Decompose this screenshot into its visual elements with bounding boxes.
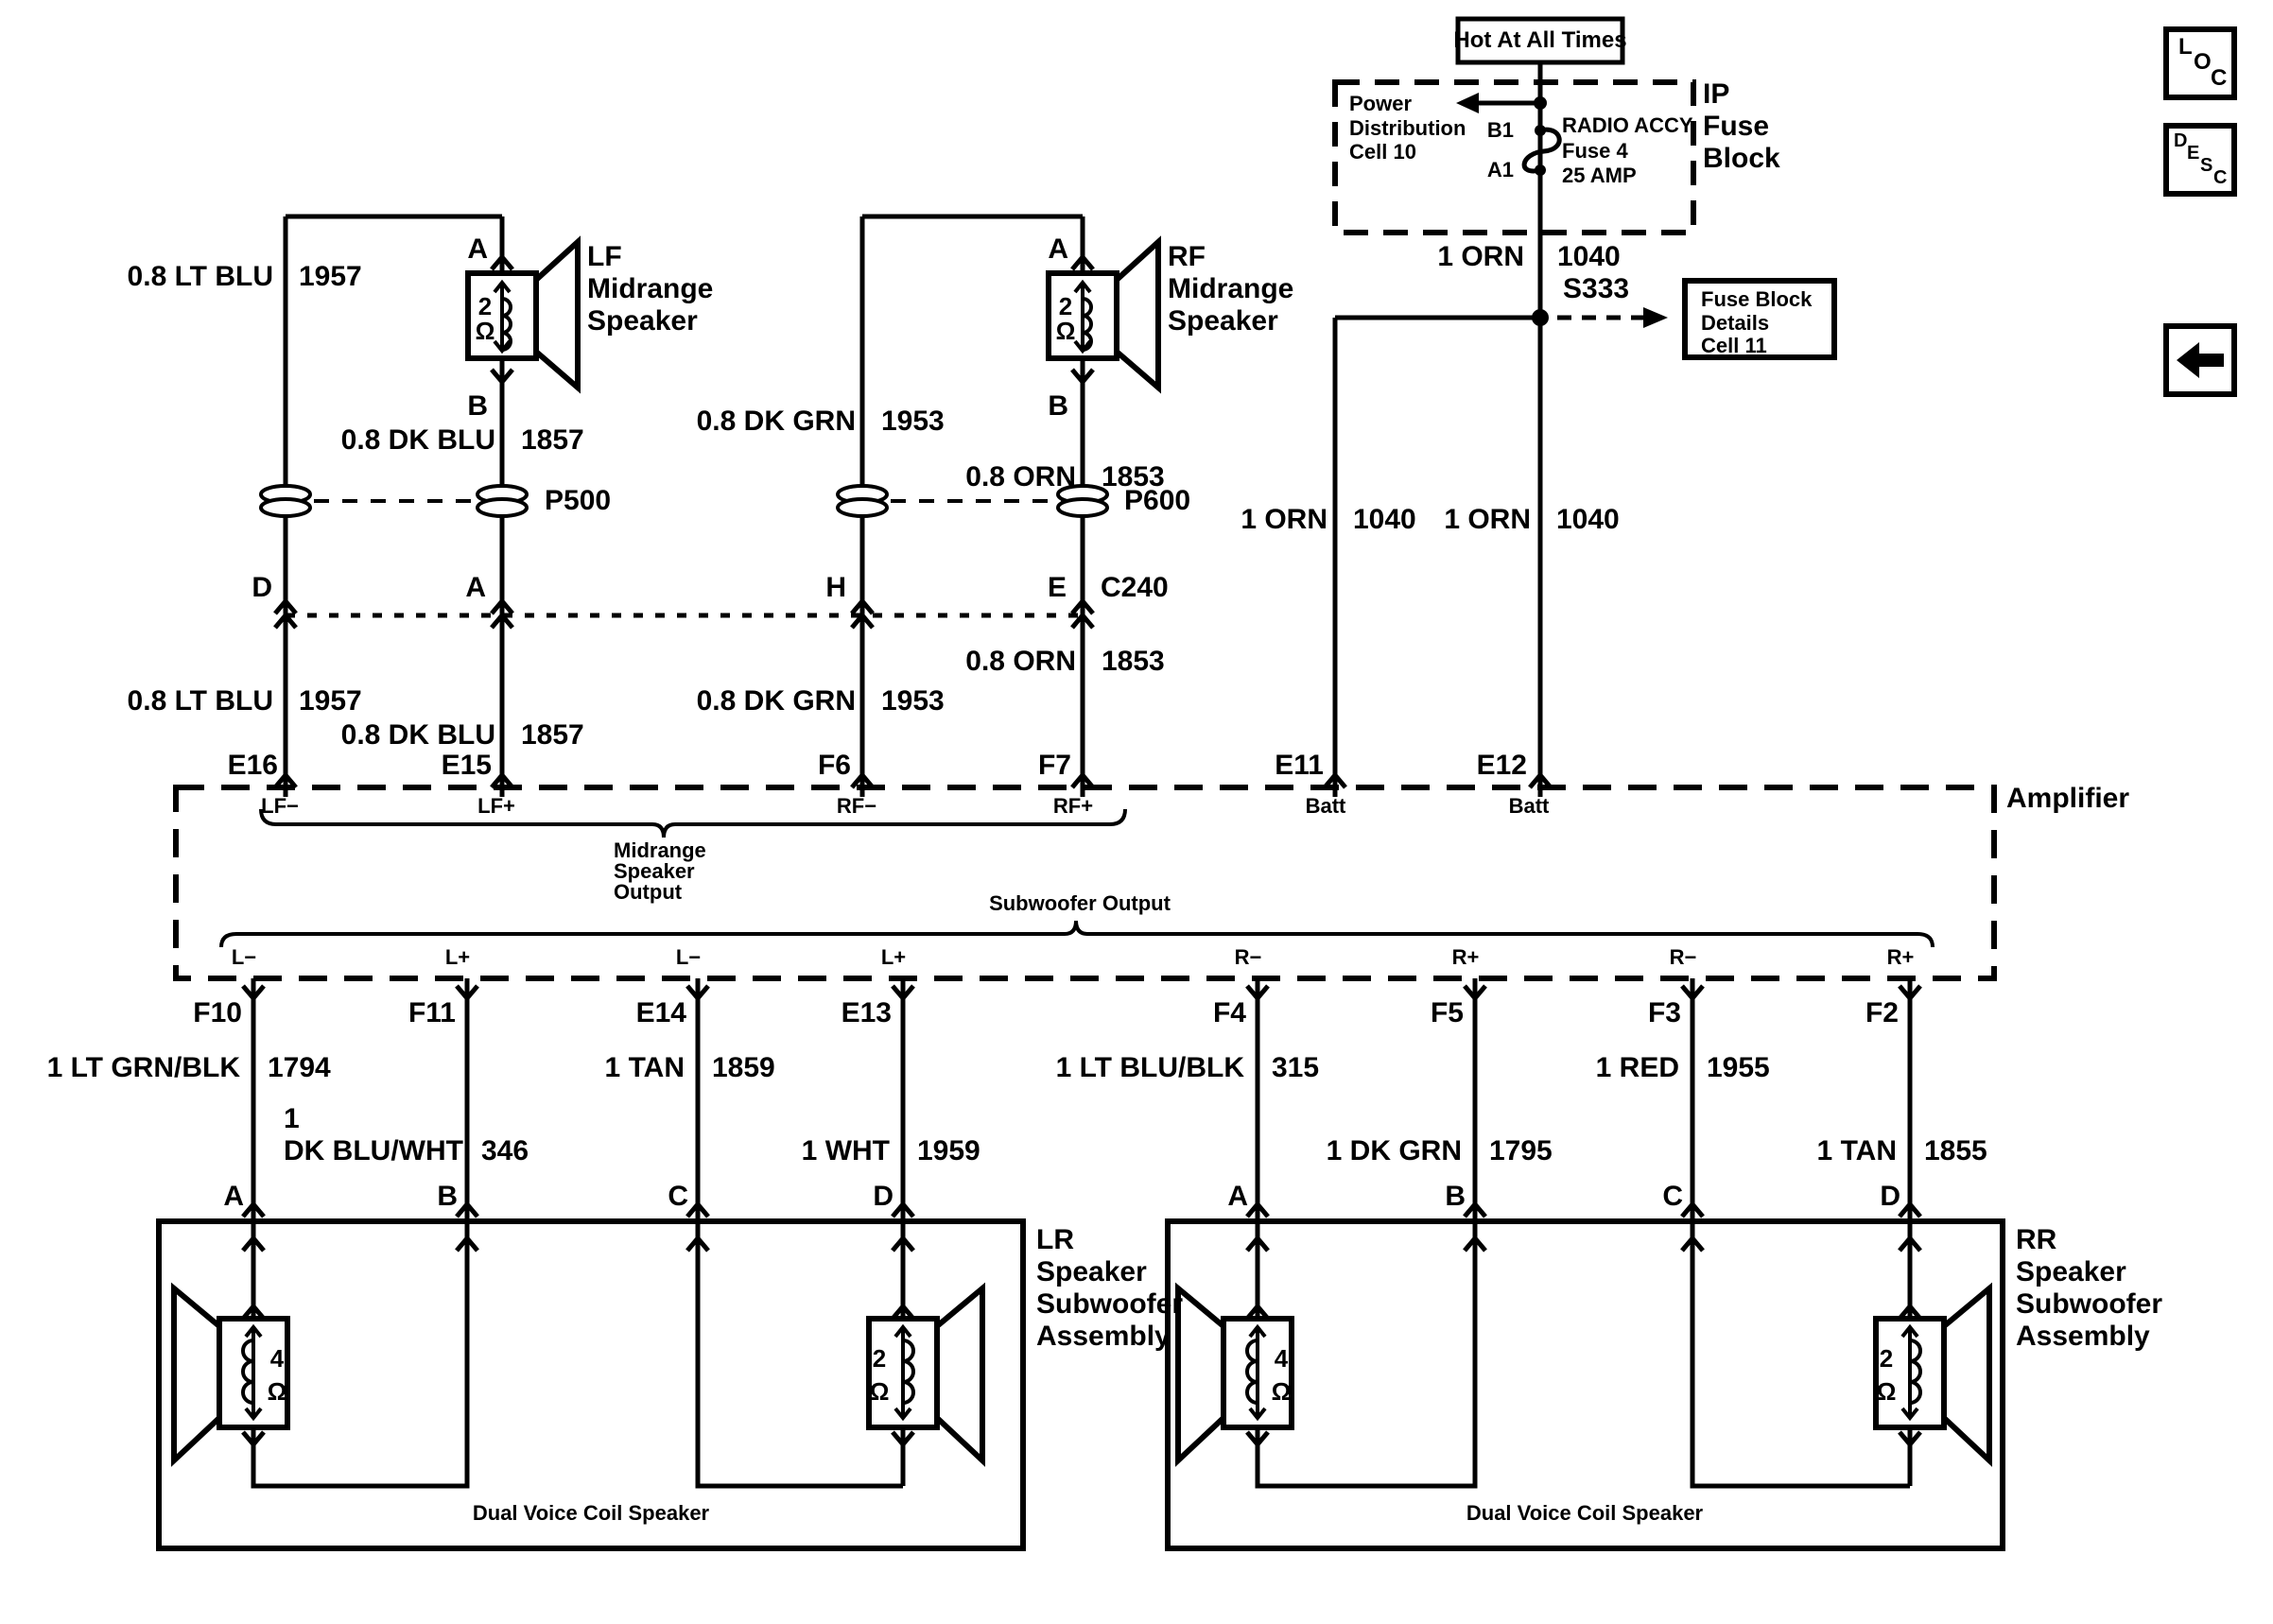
amp-pin-f11: F11 (408, 999, 456, 1028)
wire-lf-neg-name: 0.8 LT BLU (128, 263, 273, 291)
amp-pin-f4: F4 (1213, 999, 1246, 1028)
wire-batt-e11-circuit: 1040 (1353, 506, 1416, 534)
midrange-output-line: Speaker (614, 861, 695, 882)
amp-fn-batt-1: Batt (1306, 796, 1346, 817)
rf-speaker-name-line: Speaker (1168, 307, 1278, 336)
lf-pin-b-label: B (467, 392, 488, 421)
rr-dual-voice-coil-caption: Dual Voice Coil Speaker (1466, 1503, 1703, 1524)
wire-rf-neg-circuit: 1953 (881, 407, 945, 436)
amp-fn-l-neg-2: L− (676, 947, 701, 968)
loc-letter: O (2194, 51, 2212, 74)
amp-pin-e14: E14 (636, 999, 686, 1028)
rf-pin-b-label: B (1048, 392, 1068, 421)
amp-fn-batt-2: Batt (1509, 796, 1550, 817)
wire-lf-pos-name-lower: 0.8 DK BLU (341, 721, 495, 750)
wire-f5-circuit: 1795 (1489, 1137, 1553, 1166)
midrange-output-line: Midrange (614, 840, 706, 861)
amp-pin-e15: E15 (442, 752, 492, 780)
lr-pin-b: B (437, 1183, 458, 1211)
desc-letter: C (2213, 168, 2227, 187)
amp-fn-lf-pos: LF+ (477, 796, 515, 817)
wire-f4-name: 1 LT BLU/BLK (1056, 1054, 1244, 1082)
rf-impedance-value: 2 (1059, 294, 1072, 319)
power-distribution-arrow-icon (1456, 93, 1479, 113)
wire-e14-name: 1 TAN (605, 1054, 685, 1082)
wire-f11-prefix: 1 (284, 1105, 300, 1133)
rr-coil-right-unit: Ω (1877, 1379, 1897, 1404)
wire-rf-pos-circuit-lower: 1853 (1102, 648, 1165, 676)
wire-batt-e12-circuit: 1040 (1556, 506, 1620, 534)
fuse-info-line: 25 AMP (1562, 165, 1637, 186)
lr-pin-d: D (873, 1183, 894, 1211)
amp-fn-l-pos-1: L+ (445, 947, 470, 968)
fuse-info-line: RADIO ACCY (1562, 115, 1693, 136)
lr-pin-c: C (668, 1183, 688, 1211)
wire-f10-circuit: 1794 (268, 1054, 331, 1082)
wire-f11-circuit: 346 (481, 1137, 529, 1166)
rf-speaker-name-line: RF (1168, 243, 1206, 271)
amp-fn-l-pos-2: L+ (881, 947, 906, 968)
amp-fn-r-neg-2: R− (1670, 947, 1697, 968)
ip-fuse-block-title-line: Fuse (1703, 112, 1769, 141)
lf-pin-a-label: A (467, 235, 488, 264)
c240-pin-h: H (825, 574, 846, 602)
lr-coil-left-value: 4 (270, 1346, 284, 1371)
ip-fuse-block-title-line: IP (1703, 80, 1729, 109)
amp-pin-f6: F6 (818, 752, 851, 780)
lf-impedance-unit: Ω (476, 319, 495, 343)
power-distribution-line: Distribution (1349, 118, 1466, 139)
lf-speaker-name-line: LF (587, 243, 622, 271)
fuse-block-details-line: Cell 11 (1701, 336, 1767, 356)
wire-batt-e11-name: 1 ORN (1241, 506, 1327, 534)
amp-fn-r-pos-2: R+ (1887, 947, 1915, 968)
fuse-output-wire-circuit: 1040 (1557, 243, 1621, 271)
wire-lf-pos-name: 0.8 DK BLU (341, 426, 495, 455)
amp-fn-l-neg-1: L− (232, 947, 256, 968)
desc-letter: S (2200, 156, 2212, 175)
wiring-diagram-page: Hot At All Times Power Distribution Cell… (0, 0, 2273, 1624)
rf-speaker-name-line: Midrange (1168, 275, 1293, 303)
amp-pin-e13: E13 (842, 999, 892, 1028)
wire-lf-neg-circuit: 1957 (299, 263, 362, 291)
rr-voice-coil-left-icon (1178, 1288, 1292, 1460)
terminal-b1-label: B1 (1487, 120, 1514, 141)
fuse-output-wire-name: 1 ORN (1437, 243, 1524, 271)
lr-assembly-name-line: LR (1036, 1226, 1074, 1254)
wire-e13-name: 1 WHT (802, 1137, 890, 1166)
wire-f3-name: 1 RED (1596, 1054, 1679, 1082)
amp-fn-rf-neg: RF− (837, 796, 876, 817)
fuse-details-arrow-icon (1643, 307, 1668, 328)
subwoofer-output-label: Subwoofer Output (989, 893, 1171, 914)
c240-pin-d: D (252, 574, 272, 602)
wiring-diagram-art (0, 0, 2273, 1624)
connector-p500-label: P500 (545, 487, 611, 515)
amp-pin-f3: F3 (1648, 999, 1681, 1028)
connector-p600-label: P600 (1124, 487, 1190, 515)
lr-coil-left-unit: Ω (268, 1379, 287, 1404)
lr-assembly-name-line: Assembly (1036, 1322, 1171, 1351)
wire-rf-neg-circuit-lower: 1953 (881, 687, 945, 716)
c240-pin-a: A (465, 574, 486, 602)
lf-speaker-name-line: Speaker (587, 307, 698, 336)
lr-voice-coil-right-icon (869, 1288, 982, 1460)
wire-batt-e12-name: 1 ORN (1444, 506, 1531, 534)
fuse-info-line: Fuse 4 (1562, 141, 1628, 162)
splice-s333-label: S333 (1563, 275, 1629, 303)
wire-lf-pos-circuit: 1857 (521, 426, 584, 455)
c240-pin-e: E (1048, 574, 1067, 602)
lr-coil-right-value: 2 (873, 1346, 886, 1371)
amp-pin-f2: F2 (1865, 999, 1899, 1028)
rr-voice-coil-right-icon (1876, 1288, 1989, 1460)
lr-coil-right-unit: Ω (870, 1379, 890, 1404)
lf-speaker-name-line: Midrange (587, 275, 713, 303)
amplifier-label: Amplifier (2006, 785, 2129, 813)
rr-assembly-name-line: RR (2016, 1226, 2056, 1254)
back-button[interactable] (2163, 323, 2237, 397)
wire-f4-circuit: 315 (1272, 1054, 1319, 1082)
rr-pin-d: D (1880, 1183, 1900, 1211)
wire-rf-neg-name-lower: 0.8 DK GRN (697, 687, 856, 716)
fuse-block-details-line: Details (1701, 313, 1769, 334)
wire-f5-name: 1 DK GRN (1327, 1137, 1462, 1166)
hot-at-all-times-label: Hot At All Times (1453, 29, 1626, 52)
wire-rf-neg-name: 0.8 DK GRN (697, 407, 856, 436)
rr-coil-left-value: 4 (1275, 1346, 1288, 1371)
amp-fn-r-pos-1: R+ (1452, 947, 1480, 968)
wire-f2-circuit: 1855 (1924, 1137, 1987, 1166)
lr-pin-a: A (223, 1183, 244, 1211)
wire-f10-name: 1 LT GRN/BLK (47, 1054, 240, 1082)
back-arrow-icon (2169, 329, 2231, 391)
rr-assembly-name-line: Subwoofer (2016, 1290, 2162, 1319)
rr-pin-a: A (1227, 1183, 1248, 1211)
wire-f11-name: DK BLU/WHT (284, 1137, 463, 1166)
lf-impedance-value: 2 (478, 294, 492, 319)
amp-pin-e16: E16 (228, 752, 278, 780)
amp-pin-e11: E11 (1275, 752, 1324, 780)
wire-lf-neg-circuit-lower: 1957 (299, 687, 362, 716)
wire-f3-circuit: 1955 (1707, 1054, 1770, 1082)
rr-coil-left-unit: Ω (1272, 1379, 1292, 1404)
output-braces (221, 809, 1933, 947)
connector-c240-label: C240 (1101, 574, 1169, 602)
amp-pin-f7: F7 (1038, 752, 1071, 780)
rr-pin-c: C (1662, 1183, 1683, 1211)
amp-pin-f10: F10 (193, 999, 242, 1028)
wire-e13-circuit: 1959 (917, 1137, 980, 1166)
lr-assembly-name-line: Subwoofer (1036, 1290, 1183, 1319)
fuse-block-details-line: Fuse Block (1701, 289, 1812, 310)
lr-dual-voice-coil-caption: Dual Voice Coil Speaker (473, 1503, 709, 1524)
loc-button[interactable]: L O C (2163, 26, 2237, 100)
wire-e14-circuit: 1859 (712, 1054, 775, 1082)
rr-assembly-name-line: Assembly (2016, 1322, 2150, 1351)
power-distribution-line: Cell 10 (1349, 142, 1416, 163)
wire-f2-name: 1 TAN (1817, 1137, 1897, 1166)
power-distribution-line: Power (1349, 94, 1412, 114)
lr-assembly-name-line: Speaker (1036, 1258, 1147, 1287)
rf-impedance-unit: Ω (1056, 319, 1076, 343)
wire-lf-neg-name-lower: 0.8 LT BLU (128, 687, 273, 716)
amp-fn-lf-neg: LF− (261, 796, 299, 817)
amp-fn-r-neg-1: R− (1235, 947, 1262, 968)
midrange-output-line: Output (614, 882, 682, 903)
lr-voice-coil-left-icon (174, 1288, 287, 1460)
desc-letter: E (2187, 144, 2199, 163)
amp-pin-e12: E12 (1477, 752, 1527, 780)
desc-letter: D (2174, 131, 2187, 150)
wire-rf-pos-name-lower: 0.8 ORN (965, 648, 1076, 676)
rr-pin-b: B (1445, 1183, 1466, 1211)
amp-fn-rf-pos: RF+ (1053, 796, 1093, 817)
ip-fuse-block-title-line: Block (1703, 145, 1780, 173)
terminal-a1-label: A1 (1487, 160, 1514, 181)
wire-lf-pos-circuit-lower: 1857 (521, 721, 584, 750)
loc-letter: C (2211, 67, 2227, 90)
loc-letter: L (2178, 36, 2193, 59)
rr-coil-right-value: 2 (1880, 1346, 1893, 1371)
desc-button[interactable]: D E S C (2163, 123, 2237, 197)
rr-assembly-name-line: Speaker (2016, 1258, 2126, 1287)
rf-pin-a-label: A (1048, 235, 1068, 264)
wire-rf-pos-name: 0.8 ORN (965, 463, 1076, 492)
amp-pin-f5: F5 (1431, 999, 1464, 1028)
